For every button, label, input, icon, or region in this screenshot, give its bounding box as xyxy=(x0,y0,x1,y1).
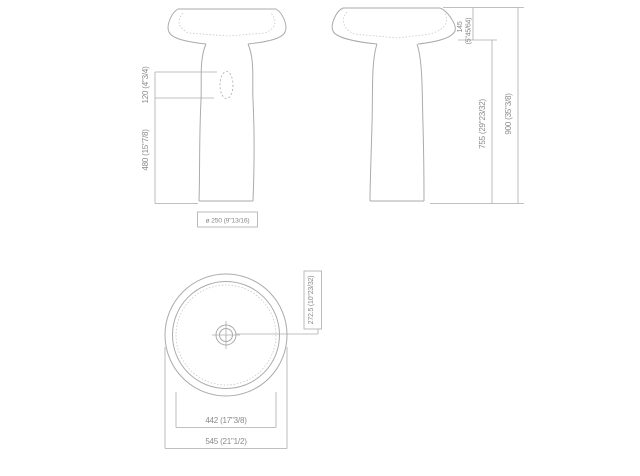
dim-overflow-height: 120 (4"3/4) xyxy=(141,66,150,104)
dim-floor-to-basin: 755 (29"23/32) xyxy=(478,99,487,149)
technical-drawing: 120 (4"3/4) 480 (15"7/8) ø 250 (9"13/16)… xyxy=(0,0,640,476)
dim-basin-depth-in: (5"45/64) xyxy=(466,18,473,45)
dim-basin-depth-mm: 145 xyxy=(457,21,464,32)
front-basin-outline-left xyxy=(168,9,206,44)
front-pedestal-right-edge xyxy=(248,44,254,201)
top-view: 272.5 (10"23/32) 442 (17"3/8) 545 (21"1/… xyxy=(165,271,322,449)
dim-pedestal-diameter: ø 250 (9"13/16) xyxy=(206,218,250,225)
dim-outer-diameter: 545 (21"1/2) xyxy=(205,437,247,446)
drawing-svg: 120 (4"3/4) 480 (15"7/8) ø 250 (9"13/16)… xyxy=(0,0,640,476)
overflow-hole xyxy=(220,72,233,99)
dim-pedestal-height: 480 (15"7/8) xyxy=(141,129,150,171)
front-basin-inner-rim xyxy=(179,13,275,36)
dim-drain-offset: 272.5 (10"23/32) xyxy=(308,276,315,325)
side-view: 145 (5"45/64) 755 (29"23/32) 900 (35"3/8… xyxy=(332,8,524,204)
side-basin-inner-rim xyxy=(343,12,446,38)
side-basin-outline-right xyxy=(418,8,455,44)
side-pedestal-left-edge xyxy=(370,44,377,201)
dim-total-height: 900 (35"3/8) xyxy=(504,93,513,135)
front-basin-outline xyxy=(178,9,286,44)
dim-inner-diameter: 442 (17"3/8) xyxy=(205,416,247,425)
side-pedestal-right-edge xyxy=(417,44,424,201)
side-basin-outline-left xyxy=(332,8,377,44)
front-view: 120 (4"3/4) 480 (15"7/8) ø 250 (9"13/16) xyxy=(141,9,286,227)
front-pedestal-left-edge xyxy=(199,44,206,201)
